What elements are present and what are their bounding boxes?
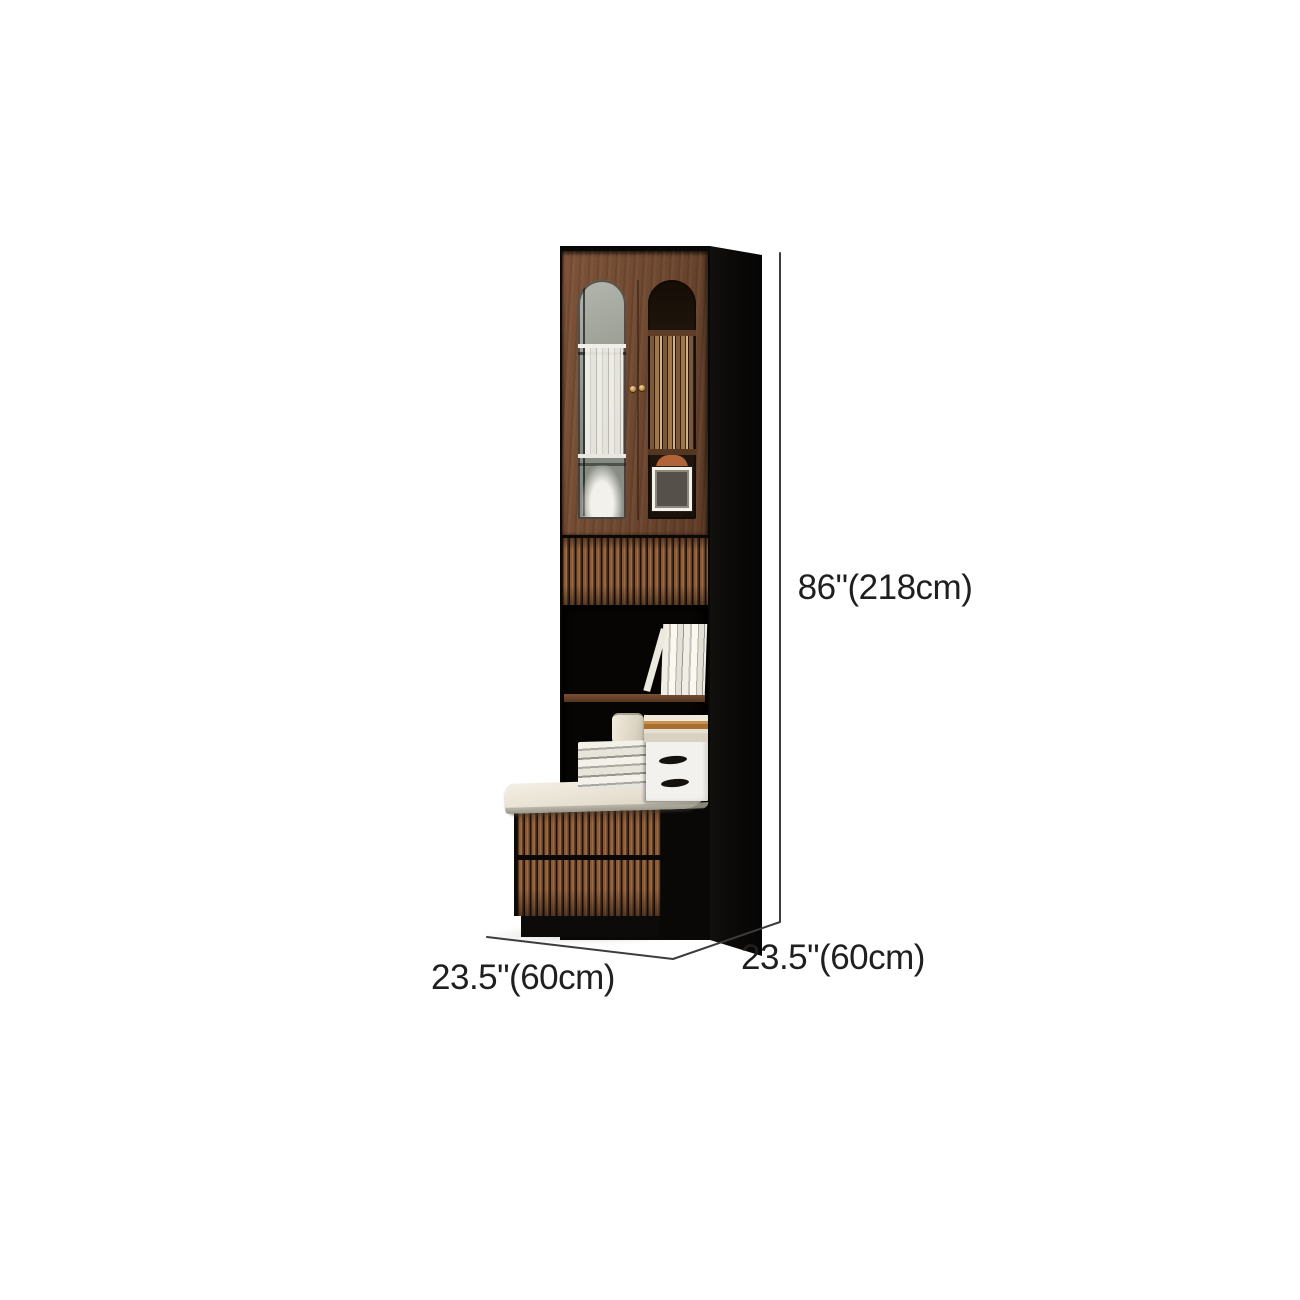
door-seam xyxy=(637,280,639,520)
brown-books xyxy=(650,336,694,449)
inner-shelf xyxy=(578,454,626,458)
framed-box xyxy=(652,467,692,511)
height-dimension-label: 86"(218cm) xyxy=(775,568,995,608)
door-knob-icon xyxy=(630,386,636,392)
glass-door-right xyxy=(648,280,696,519)
width-dimension-label: 23.5"(60cm) xyxy=(413,958,633,998)
white-books xyxy=(585,348,623,454)
glass-reflection xyxy=(582,465,622,517)
product-dimension-image: 86"(218cm) 23.5"(60cm) 23.5"(60cm) xyxy=(0,0,1300,1300)
door-knob-icon xyxy=(639,385,645,391)
dimension-lines xyxy=(0,0,1300,1300)
glass-door-left xyxy=(578,280,626,519)
depth-dimension-label: 23.5"(60cm) xyxy=(723,938,943,978)
